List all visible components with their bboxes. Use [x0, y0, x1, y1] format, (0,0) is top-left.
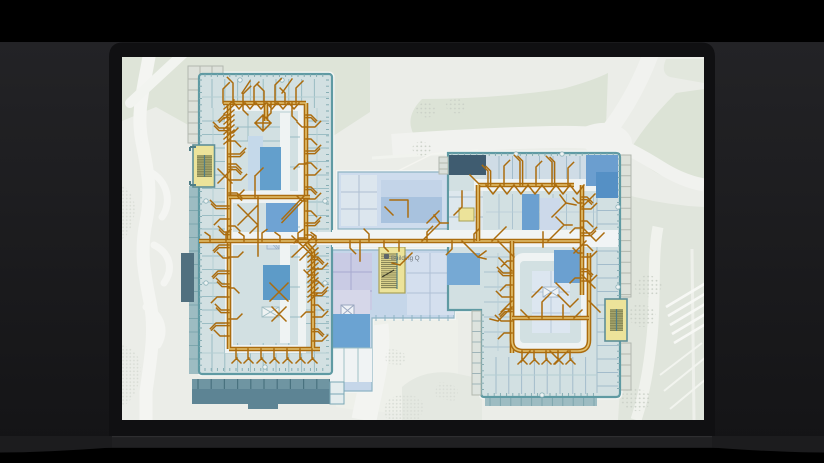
- svg-text:Building Q: Building Q: [391, 255, 420, 262]
